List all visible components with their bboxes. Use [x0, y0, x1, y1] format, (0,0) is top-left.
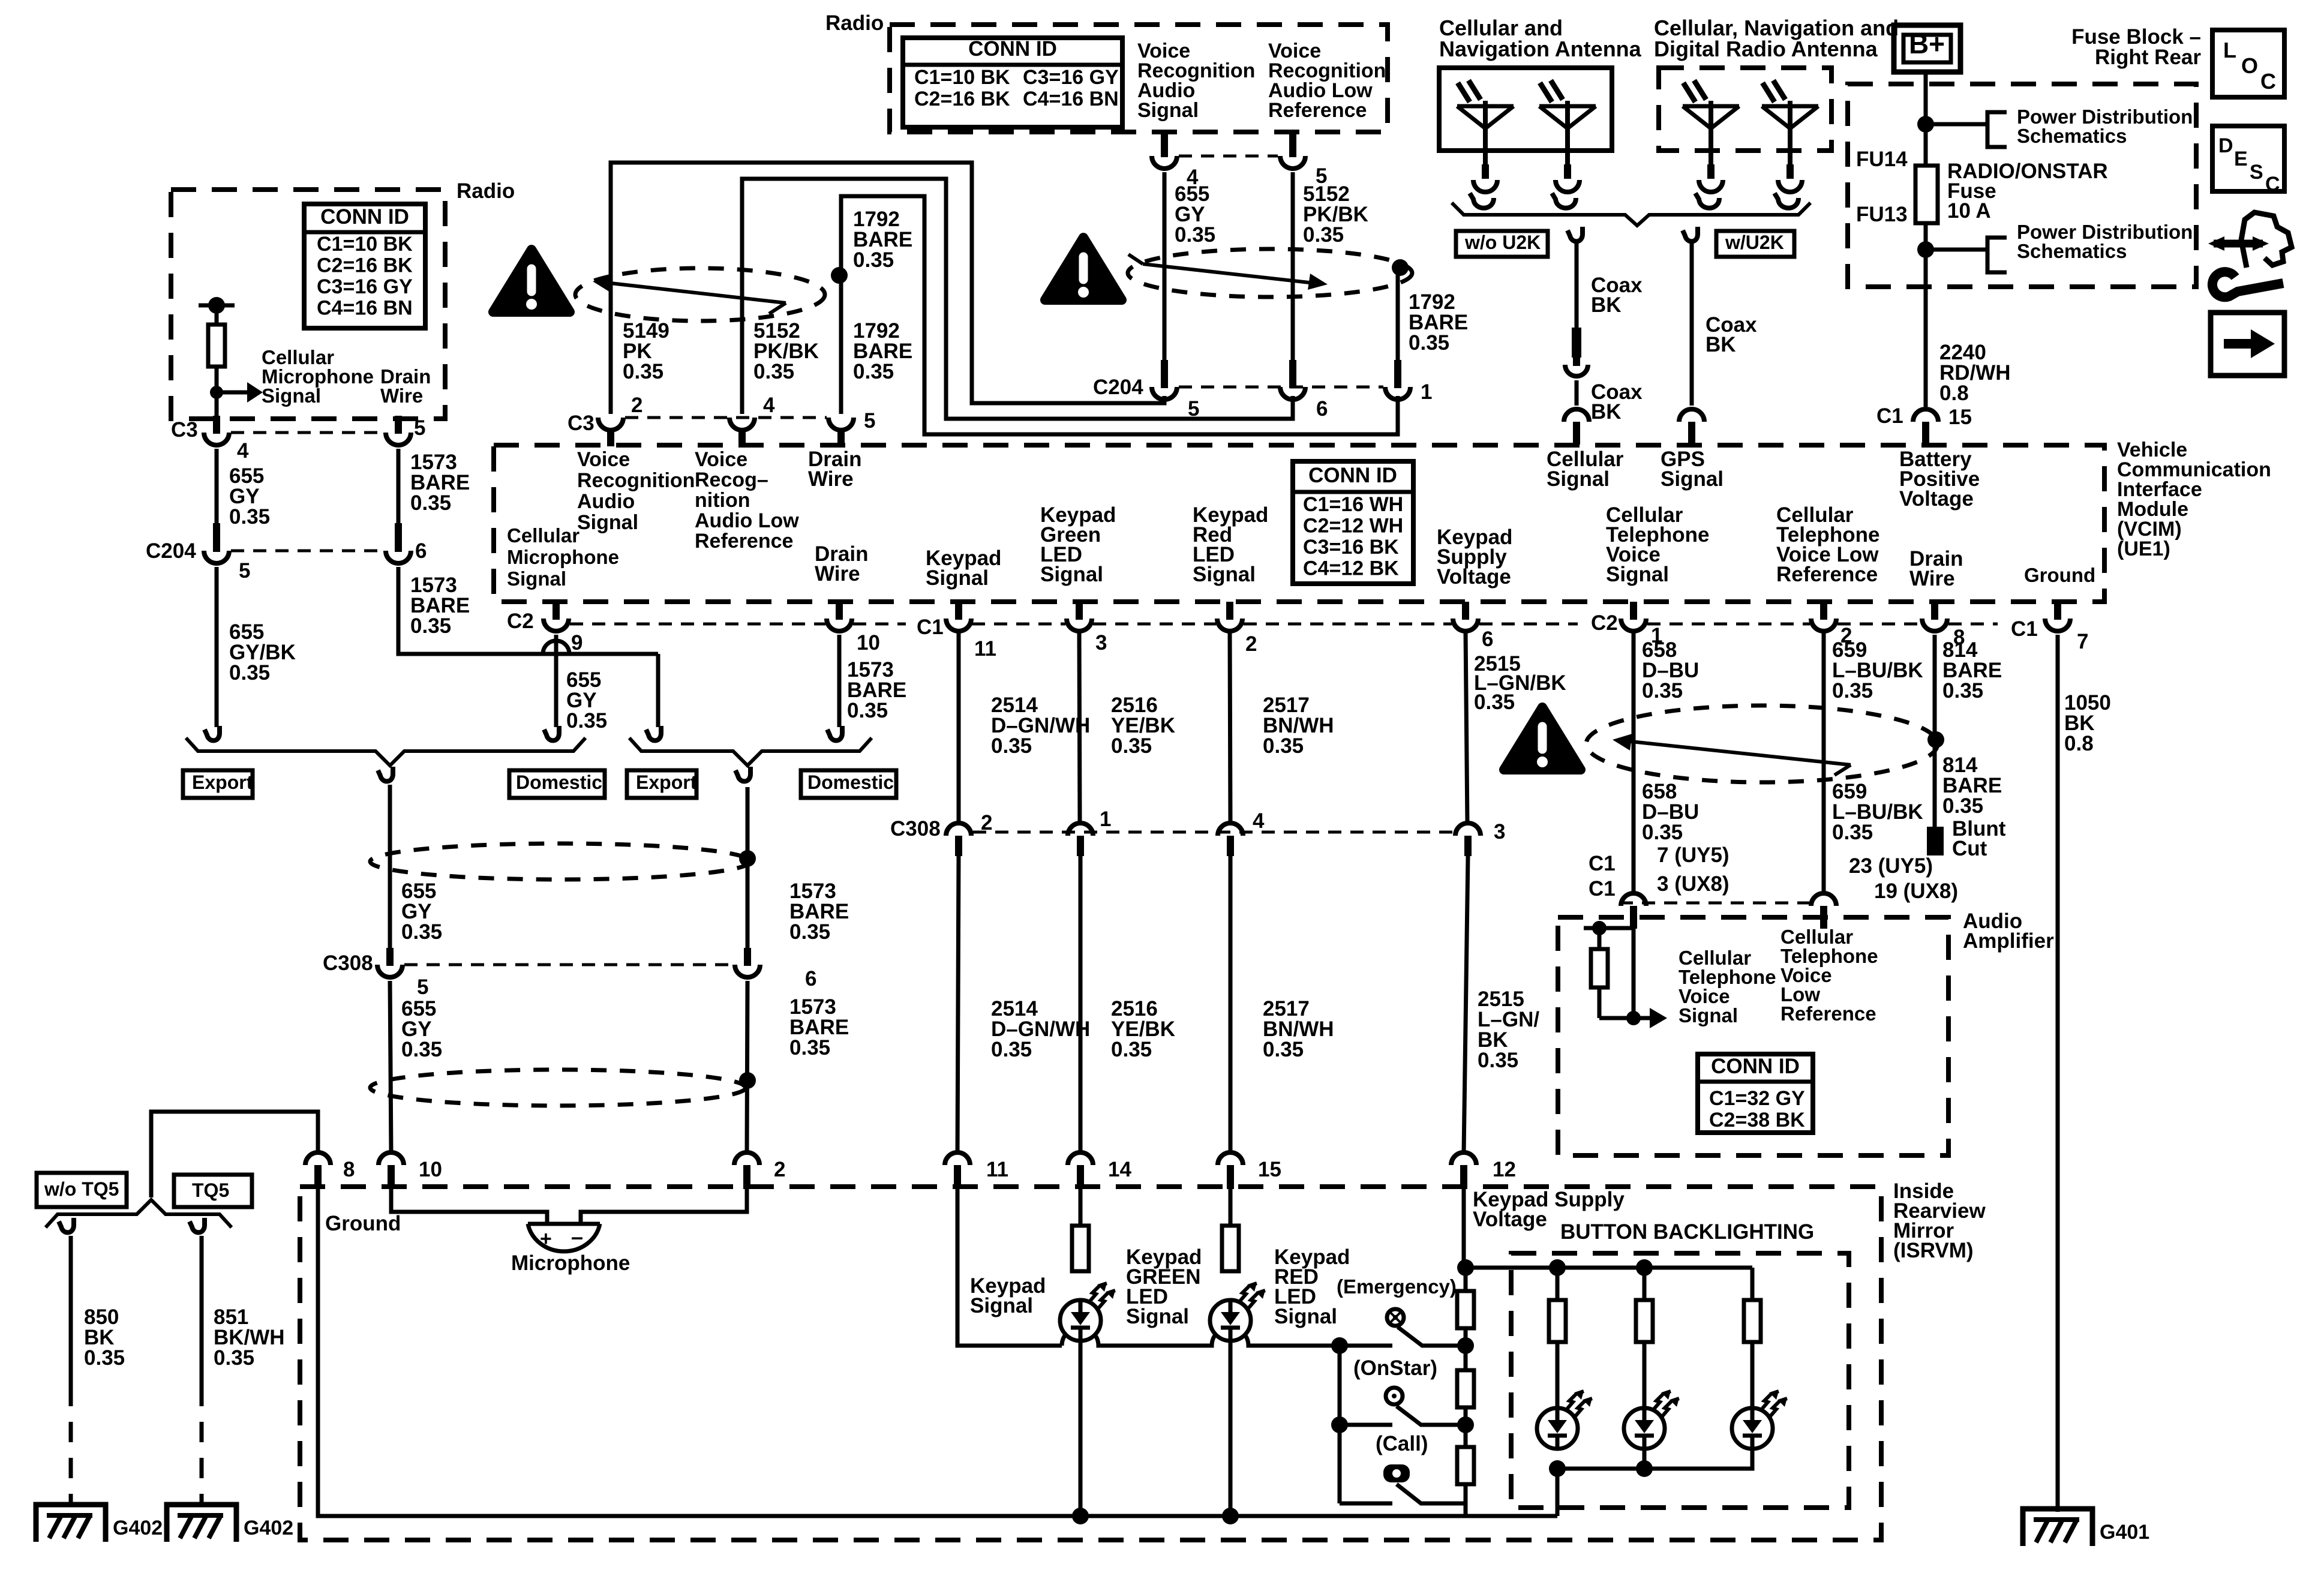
svg-text:0.35: 0.35 [1175, 223, 1215, 247]
svg-text:C1: C1 [1876, 404, 1903, 428]
svg-text:0.35: 0.35 [1478, 1049, 1518, 1072]
svg-text:1: 1 [1100, 807, 1111, 831]
svg-text:Voltage: Voltage [1437, 565, 1511, 589]
svg-text:C308: C308 [890, 817, 941, 840]
svg-text:Reference: Reference [695, 530, 793, 553]
svg-text:C1: C1 [2011, 617, 2038, 641]
svg-text:0.35: 0.35 [1942, 794, 1983, 818]
svg-text:3 (UX8): 3 (UX8) [1657, 872, 1730, 896]
svg-text:6: 6 [1316, 397, 1328, 421]
svg-text:C2=16 BK: C2=16 BK [914, 88, 1010, 110]
svg-text:0.35: 0.35 [1832, 679, 1873, 703]
svg-text:Wire: Wire [380, 385, 423, 407]
svg-text:Voltage: Voltage [1899, 487, 1974, 511]
svg-text:Signal: Signal [1040, 563, 1103, 586]
svg-text:2: 2 [631, 394, 642, 417]
svg-text:Reference: Reference [1780, 1002, 1876, 1025]
svg-text:0.35: 0.35 [853, 360, 894, 383]
svg-text:Domestic: Domestic [516, 772, 602, 793]
svg-text:0.35: 0.35 [229, 505, 270, 529]
svg-text:C4=16 BN: C4=16 BN [1023, 88, 1119, 110]
svg-text:6: 6 [415, 539, 427, 563]
svg-text:L: L [2223, 38, 2236, 62]
svg-text:5: 5 [864, 409, 875, 433]
svg-text:Domestic: Domestic [807, 772, 894, 793]
svg-text:Signal: Signal [1661, 467, 1724, 491]
svg-text:0.35: 0.35 [753, 360, 794, 383]
svg-text:(Call): (Call) [1376, 1432, 1428, 1455]
svg-text:10 A: 10 A [1947, 199, 1991, 223]
svg-text:C3=16 GY: C3=16 GY [1023, 66, 1119, 89]
svg-text:G401: G401 [2100, 1521, 2149, 1544]
svg-text:0.35: 0.35 [1942, 679, 1983, 703]
svg-text:0.35: 0.35 [1642, 821, 1683, 844]
svg-text:Microphone: Microphone [507, 546, 619, 568]
svg-text:15: 15 [1258, 1158, 1281, 1181]
svg-text:CONN ID: CONN ID [1711, 1055, 1800, 1078]
svg-text:Amplifier: Amplifier [1963, 929, 2054, 953]
svg-text:Digital Radio Antenna: Digital Radio Antenna [1654, 37, 1878, 61]
svg-text:Reference: Reference [1268, 99, 1367, 122]
svg-text:6: 6 [1482, 628, 1493, 651]
svg-text:C1=10 BK: C1=10 BK [914, 66, 1010, 89]
svg-text:Radio: Radio [825, 11, 884, 35]
svg-text:Wire: Wire [808, 467, 854, 491]
svg-text:6: 6 [805, 967, 816, 990]
svg-text:Signal: Signal [1547, 467, 1610, 491]
svg-text:0.35: 0.35 [1111, 734, 1152, 758]
svg-text:C1: C1 [1589, 852, 1616, 875]
svg-text:4: 4 [1253, 809, 1265, 833]
svg-text:(ISRVM): (ISRVM) [1893, 1239, 1974, 1262]
svg-text:C204: C204 [146, 539, 196, 563]
svg-text:nition: nition [695, 489, 750, 512]
svg-text:0.35: 0.35 [1642, 679, 1683, 703]
svg-text:S: S [2250, 161, 2263, 184]
svg-text:0.35: 0.35 [853, 248, 894, 272]
svg-text:Navigation Antenna: Navigation Antenna [1439, 37, 1642, 61]
svg-text:0.8: 0.8 [2064, 732, 2094, 755]
svg-text:Radio: Radio [457, 179, 515, 203]
svg-text:0.35: 0.35 [214, 1346, 254, 1370]
svg-text:5: 5 [414, 416, 425, 440]
svg-text:0.35: 0.35 [789, 1036, 830, 1059]
svg-text:C3=16 BK: C3=16 BK [1303, 536, 1399, 559]
svg-text:Signal: Signal [507, 568, 566, 590]
svg-text:Signal: Signal [262, 385, 321, 407]
svg-text:C3=16 GY: C3=16 GY [317, 275, 413, 298]
svg-text:C1=32 GY: C1=32 GY [1709, 1087, 1805, 1110]
svg-text:Voice: Voice [695, 448, 747, 471]
svg-text:Signal: Signal [577, 511, 638, 534]
svg-text:Signal: Signal [926, 566, 989, 590]
svg-text:10: 10 [419, 1158, 442, 1181]
svg-text:BK: BK [1591, 293, 1622, 317]
svg-text:Schematics: Schematics [2017, 125, 2127, 147]
svg-text:0.35: 0.35 [789, 920, 830, 944]
svg-text:BK: BK [1591, 400, 1622, 424]
svg-text:D: D [2218, 134, 2233, 157]
svg-text:w/o TQ5: w/o TQ5 [44, 1178, 119, 1200]
svg-text:0.35: 0.35 [566, 709, 607, 733]
svg-text:0.35: 0.35 [401, 1038, 442, 1061]
svg-text:C2: C2 [507, 610, 534, 633]
svg-text:C: C [2260, 69, 2276, 94]
svg-text:C3: C3 [171, 418, 198, 442]
svg-text:0.35: 0.35 [401, 920, 442, 944]
svg-text:Reference: Reference [1776, 563, 1878, 586]
svg-text:CONN ID: CONN ID [320, 205, 409, 229]
svg-text:CONN ID: CONN ID [968, 37, 1057, 61]
svg-text:0.35: 0.35 [991, 734, 1032, 758]
svg-text:Voice: Voice [577, 448, 630, 471]
svg-text:Wire: Wire [815, 562, 860, 586]
svg-text:2: 2 [1245, 632, 1257, 656]
svg-text:Ground: Ground [2024, 564, 2095, 586]
svg-text:5: 5 [239, 559, 250, 583]
svg-text:0.35: 0.35 [1409, 331, 1449, 355]
svg-text:C2=38 BK: C2=38 BK [1709, 1109, 1805, 1131]
svg-text:FU14: FU14 [1856, 148, 1908, 171]
svg-text:E: E [2234, 148, 2248, 170]
svg-text:C2: C2 [1591, 611, 1618, 635]
svg-text:0.35: 0.35 [623, 360, 663, 383]
svg-text:9: 9 [571, 631, 582, 655]
svg-text:(OnStar): (OnStar) [1353, 1356, 1437, 1380]
svg-text:4: 4 [763, 394, 775, 417]
svg-text:C4=16 BN: C4=16 BN [317, 297, 413, 320]
svg-text:0.35: 0.35 [229, 661, 270, 685]
svg-text:2: 2 [774, 1158, 785, 1181]
svg-text:G402: G402 [244, 1517, 293, 1539]
svg-text:C: C [2265, 173, 2280, 196]
svg-text:0.35: 0.35 [1263, 1038, 1304, 1061]
svg-text:(UE1): (UE1) [2117, 538, 2170, 560]
svg-text:Export: Export [636, 772, 697, 793]
svg-text:C1: C1 [1589, 877, 1616, 900]
svg-text:Cellular: Cellular [507, 524, 580, 547]
svg-text:12: 12 [1493, 1158, 1516, 1181]
svg-text:7 (UY5): 7 (UY5) [1657, 843, 1730, 867]
svg-text:C1: C1 [917, 616, 944, 639]
svg-text:Cut: Cut [1952, 837, 1987, 860]
svg-text:C1=16 WH: C1=16 WH [1303, 493, 1403, 516]
svg-text:Signal: Signal [1274, 1305, 1337, 1328]
svg-text:Ground: Ground [325, 1212, 401, 1235]
svg-text:+: + [540, 1227, 552, 1250]
svg-text:1: 1 [1421, 380, 1432, 404]
svg-text:Signal: Signal [970, 1294, 1033, 1317]
svg-text:Signal: Signal [1126, 1305, 1189, 1328]
svg-text:Recognition: Recognition [577, 469, 695, 492]
svg-text:Audio: Audio [577, 490, 635, 513]
svg-text:C2=12 WH: C2=12 WH [1303, 515, 1403, 538]
svg-text:B+: B+ [1909, 28, 1945, 59]
svg-text:0.35: 0.35 [1111, 1038, 1152, 1061]
svg-text:Voltage: Voltage [1473, 1208, 1547, 1231]
svg-text:0.35: 0.35 [1303, 223, 1344, 247]
svg-text:7: 7 [2077, 630, 2088, 653]
svg-text:0.35: 0.35 [84, 1346, 125, 1370]
svg-text:CONN ID: CONN ID [1308, 464, 1397, 487]
svg-text:Recog–: Recog– [695, 469, 768, 491]
svg-text:0.35: 0.35 [1474, 691, 1515, 714]
svg-text:0.35: 0.35 [410, 491, 451, 515]
svg-text:3: 3 [1095, 631, 1107, 655]
svg-text:11: 11 [974, 637, 996, 661]
svg-text:O: O [2241, 53, 2258, 78]
svg-text:0.8: 0.8 [1939, 382, 1969, 405]
svg-text:Export: Export [192, 772, 253, 793]
svg-text:0.35: 0.35 [1832, 821, 1873, 844]
svg-text:0.35: 0.35 [1263, 734, 1304, 758]
svg-text:C1=10 BK: C1=10 BK [317, 233, 413, 256]
svg-text:Signal: Signal [1193, 563, 1256, 586]
svg-text:C2=16 BK: C2=16 BK [317, 254, 413, 277]
svg-text:BUTTON BACKLIGHTING: BUTTON BACKLIGHTING [1560, 1220, 1814, 1244]
svg-text:C3: C3 [568, 412, 594, 435]
svg-text:Signal: Signal [1137, 99, 1199, 122]
svg-text:Audio Low: Audio Low [695, 509, 799, 532]
svg-text:0.35: 0.35 [991, 1038, 1032, 1061]
svg-text:w/o U2K: w/o U2K [1464, 232, 1541, 253]
svg-text:Wire: Wire [1909, 567, 1955, 590]
svg-text:10: 10 [857, 631, 880, 655]
svg-text:11: 11 [986, 1158, 1008, 1181]
svg-text:C4=12 BK: C4=12 BK [1303, 557, 1399, 580]
svg-text:0.35: 0.35 [847, 699, 888, 722]
svg-text:23 (UY5): 23 (UY5) [1849, 854, 1933, 878]
svg-text:Microphone: Microphone [511, 1251, 630, 1275]
svg-text:5: 5 [417, 975, 428, 999]
svg-text:15: 15 [1948, 406, 1972, 429]
svg-text:Right Rear: Right Rear [2095, 46, 2201, 69]
svg-text:–: – [571, 1224, 583, 1249]
svg-text:Schematics: Schematics [2017, 240, 2127, 262]
svg-text:19 (UX8): 19 (UX8) [1874, 879, 1958, 903]
svg-text:(Emergency): (Emergency) [1337, 1275, 1457, 1298]
svg-text:4: 4 [237, 439, 249, 463]
svg-text:Signal: Signal [1606, 563, 1669, 586]
svg-text:0.35: 0.35 [410, 614, 451, 638]
svg-text:Signal: Signal [1679, 1004, 1738, 1026]
svg-text:C308: C308 [323, 951, 373, 975]
svg-text:14: 14 [1108, 1158, 1131, 1181]
svg-text:8: 8 [343, 1158, 355, 1181]
svg-text:w/U2K: w/U2K [1725, 232, 1784, 253]
svg-text:3: 3 [1494, 820, 1505, 843]
svg-text:G402: G402 [113, 1517, 163, 1539]
svg-text:TQ5: TQ5 [192, 1179, 229, 1201]
svg-text:BK: BK [1706, 333, 1736, 356]
svg-text:FU13: FU13 [1856, 203, 1908, 226]
svg-text:C204: C204 [1093, 376, 1143, 399]
